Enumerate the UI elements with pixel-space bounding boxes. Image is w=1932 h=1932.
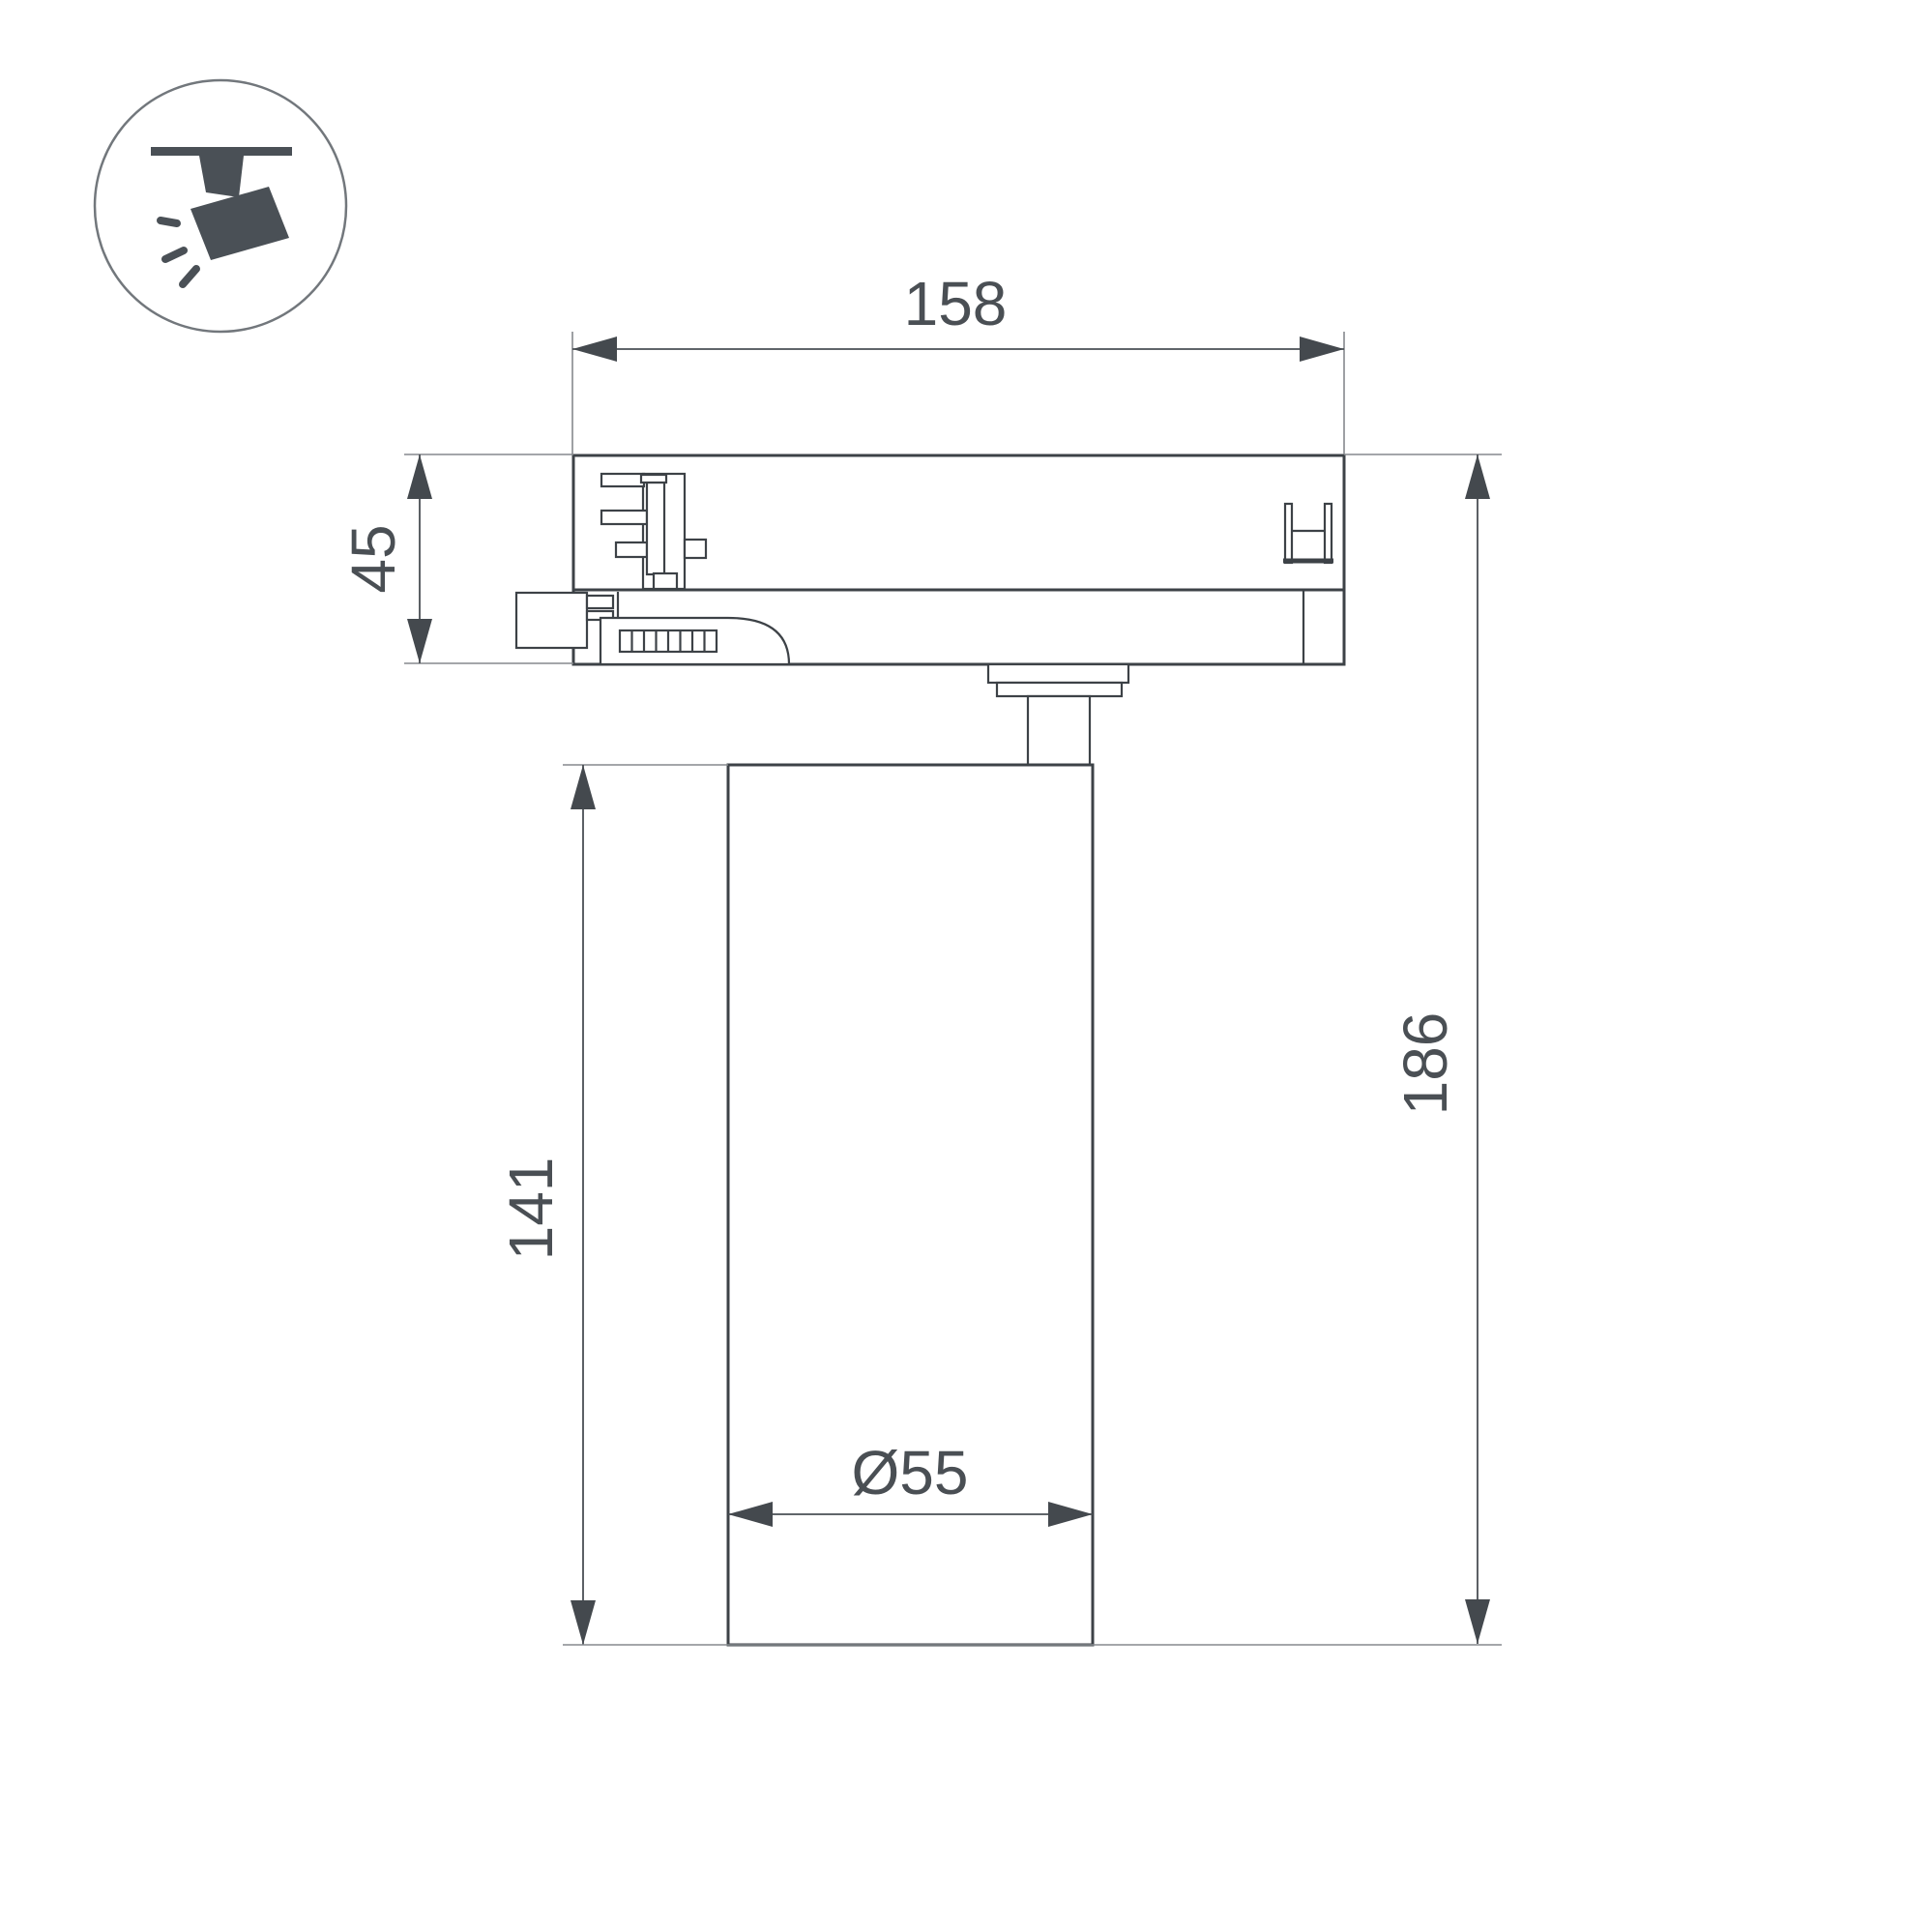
lamp-body (728, 765, 1093, 1645)
lock-clamp-box (516, 593, 587, 648)
contact-pin-shaft (647, 483, 664, 574)
swivel-stem (1028, 696, 1090, 765)
dim-adapter-width-158: 158 (572, 269, 1344, 454)
dim-141-arrow-top (571, 765, 596, 809)
dim-158-label: 158 (904, 269, 1008, 338)
dim-141-label: 141 (496, 1157, 566, 1261)
slider-ridges (620, 630, 717, 652)
dim-45-arrow-bottom (407, 619, 432, 663)
dim-141-arrow-bottom (571, 1600, 596, 1645)
dim-186-arrow-bottom (1465, 1599, 1490, 1644)
swivel-bracket (988, 664, 1128, 765)
dim-186-arrow-top (1465, 454, 1490, 499)
dim-body-height-141: 141 (496, 765, 728, 1645)
swivel-step-lower (997, 683, 1122, 696)
track-spotlight-icon (95, 80, 346, 332)
end-clip-right-leg (1325, 504, 1332, 563)
icon-ceiling-track-line (151, 147, 292, 156)
dim-158-arrow-left (572, 337, 617, 362)
contact-prong-middle (601, 511, 647, 524)
end-clip-left-leg (1285, 504, 1292, 563)
dim-158-arrow-right (1300, 337, 1344, 362)
dim-45-arrow-top (407, 454, 432, 499)
adapter-upper-housing (573, 455, 1344, 590)
icon-mount-stem (199, 156, 244, 197)
track-adapter (516, 455, 1344, 765)
technical-drawing-page: 158 45 141 186 Ø55 (0, 0, 1932, 1932)
dim-55-label: Ø55 (852, 1438, 969, 1508)
lock-clamp-latch-upper (587, 596, 613, 608)
contact-prong-top (601, 474, 644, 486)
dim-186-label: 186 (1390, 1012, 1460, 1116)
contact-pin-cap (641, 475, 666, 483)
swivel-step-upper (988, 664, 1128, 683)
contact-side-notch (685, 540, 706, 558)
dim-45-label: 45 (338, 524, 408, 593)
contact-prong-bottom (616, 542, 647, 557)
contact-pin-foot (654, 573, 677, 589)
technical-drawing-canvas: 158 45 141 186 Ø55 (0, 0, 1932, 1932)
